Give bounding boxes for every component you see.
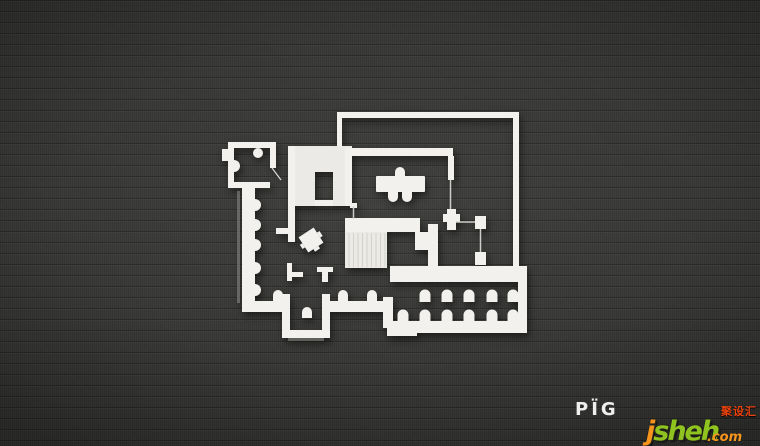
scene: PÏG 聚设汇 jsheh .com [0, 0, 760, 446]
dining-room [345, 148, 454, 202]
post [475, 252, 486, 265]
wall-seat [255, 239, 261, 251]
rotated-table [296, 226, 328, 257]
wall-seat [255, 284, 261, 296]
bay-nook [282, 294, 330, 341]
seat-row-upper [420, 290, 519, 303]
pig-logo-text: PÏG [575, 399, 619, 420]
bench-seat [273, 290, 283, 301]
nook-seat [302, 307, 312, 318]
small-table-2 [317, 267, 333, 282]
bench-seat [338, 290, 348, 301]
post [475, 216, 486, 229]
seat-row-lower [398, 310, 519, 323]
seating-hall [383, 266, 527, 336]
watermark-cjk-text: 聚设汇 [721, 403, 757, 419]
staircase [345, 218, 438, 274]
jsheh-watermark: 聚设汇 jsheh .com [646, 403, 758, 445]
bench-seat [367, 290, 377, 301]
toilet-fixture [234, 160, 240, 172]
floor-plan [0, 0, 760, 446]
restroom [222, 142, 281, 188]
wall-seat [255, 219, 261, 231]
post [443, 209, 460, 230]
watermark-dot-com: .com [707, 430, 742, 445]
small-table-1 [287, 263, 303, 281]
dining-chair [388, 191, 398, 202]
pig-logo: PÏG [575, 398, 619, 422]
basin-fixture [253, 148, 263, 158]
entry-area [276, 146, 352, 242]
wall-seat [255, 262, 261, 274]
wall-seat [255, 199, 261, 211]
dining-chair [402, 191, 412, 202]
dining-table [376, 176, 425, 192]
